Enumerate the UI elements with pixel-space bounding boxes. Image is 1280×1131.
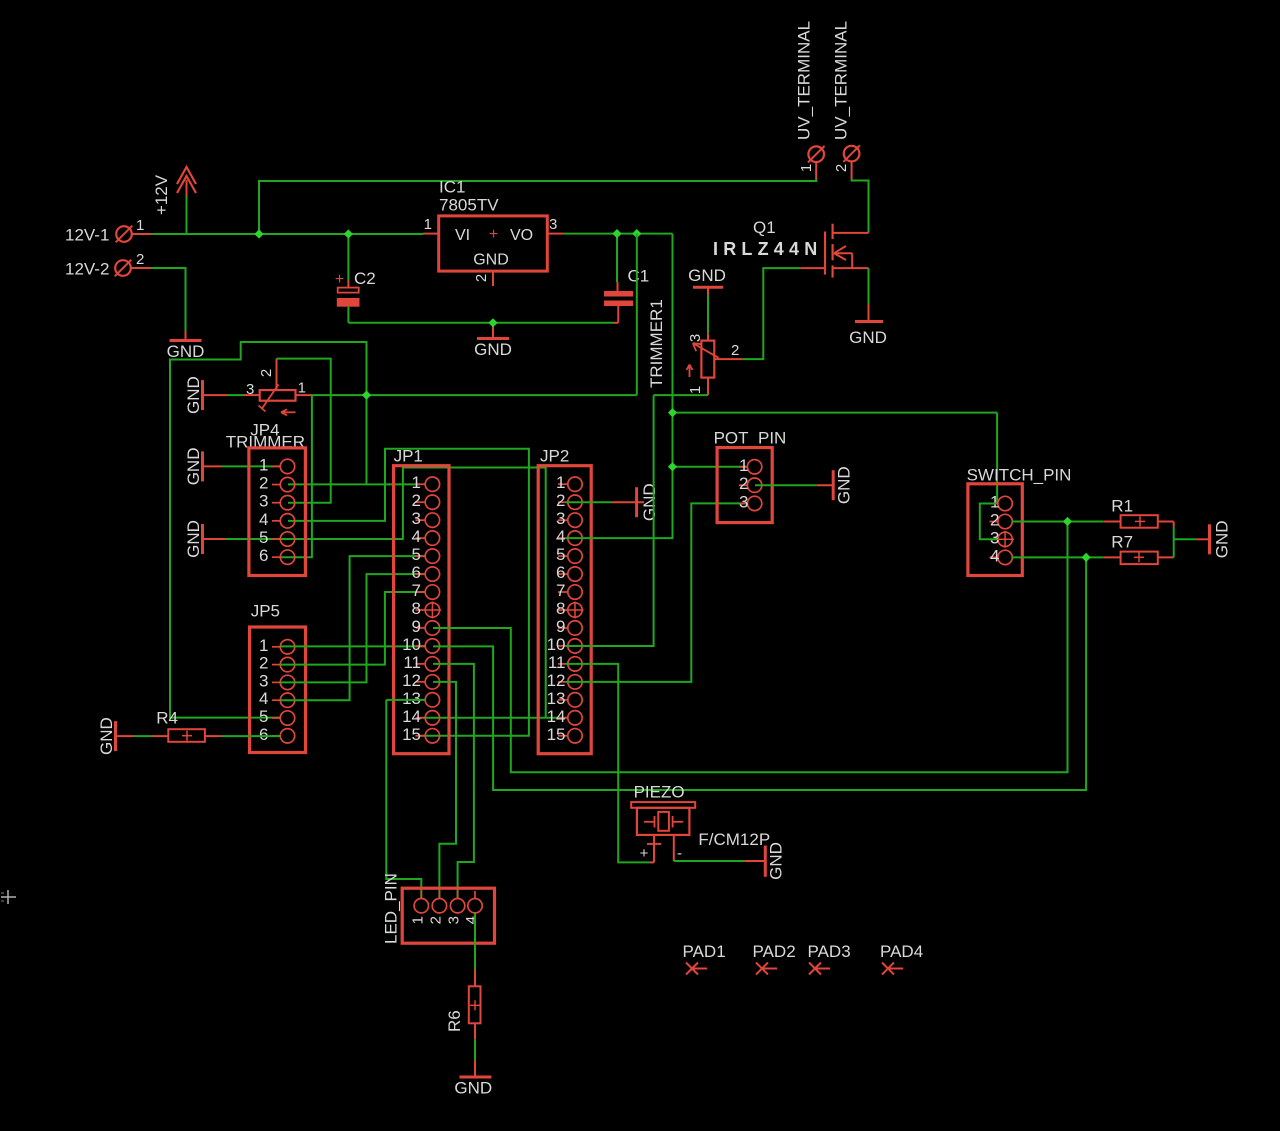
svg-text:10: 10 <box>402 635 421 654</box>
svg-text:3: 3 <box>990 528 999 547</box>
svg-text:+: + <box>489 226 498 243</box>
svg-text:GND: GND <box>849 328 887 347</box>
svg-text:2: 2 <box>990 511 999 530</box>
svg-text:GND: GND <box>473 252 509 269</box>
svg-text:12: 12 <box>402 671 421 690</box>
svg-text:9: 9 <box>412 617 421 636</box>
svg-text:3: 3 <box>259 492 268 511</box>
svg-text:13: 13 <box>402 689 421 708</box>
svg-text:11: 11 <box>548 653 566 672</box>
svg-text:R1: R1 <box>1111 497 1133 516</box>
svg-text:PIEZO: PIEZO <box>634 783 685 802</box>
svg-text:9: 9 <box>556 617 565 636</box>
svg-text:2: 2 <box>739 474 748 493</box>
svg-text:4: 4 <box>412 527 421 546</box>
svg-text:GND: GND <box>184 448 203 486</box>
svg-text:GND: GND <box>1213 520 1232 558</box>
svg-text:2: 2 <box>136 251 144 268</box>
svg-text:8: 8 <box>556 599 565 618</box>
svg-text:F/CM12P: F/CM12P <box>698 830 770 849</box>
svg-text:JP2: JP2 <box>540 447 569 466</box>
svg-text:2: 2 <box>731 342 739 359</box>
svg-text:15: 15 <box>402 725 421 744</box>
svg-text:1: 1 <box>556 473 565 492</box>
svg-text:R4: R4 <box>156 709 178 728</box>
svg-text:7: 7 <box>556 581 565 600</box>
svg-text:12V-1: 12V-1 <box>65 226 109 245</box>
svg-text:C1: C1 <box>628 267 650 286</box>
svg-text:6: 6 <box>259 725 268 744</box>
svg-text:3: 3 <box>446 916 463 924</box>
svg-text:14: 14 <box>402 707 421 726</box>
svg-text:R6: R6 <box>445 1010 464 1032</box>
svg-text:1: 1 <box>298 380 306 397</box>
svg-text:C2: C2 <box>354 269 376 288</box>
svg-text:IC1: IC1 <box>439 178 465 197</box>
svg-text:5: 5 <box>556 545 565 564</box>
svg-text:1: 1 <box>259 636 268 655</box>
svg-text:2: 2 <box>427 916 444 924</box>
svg-text:3: 3 <box>739 492 748 511</box>
svg-text:GND: GND <box>767 842 786 880</box>
svg-text:2: 2 <box>412 491 421 510</box>
svg-text:GND: GND <box>835 466 854 504</box>
svg-text:UV_TERMINAL: UV_TERMINAL <box>832 21 851 140</box>
svg-text:12V-2: 12V-2 <box>65 260 109 279</box>
svg-text:1: 1 <box>739 456 748 475</box>
svg-text:PAD1: PAD1 <box>683 942 726 961</box>
svg-text:-: - <box>677 845 682 862</box>
svg-text:GND: GND <box>97 717 116 755</box>
svg-text:1: 1 <box>409 916 426 924</box>
svg-text:6: 6 <box>556 563 565 582</box>
svg-text:+: + <box>335 271 344 288</box>
svg-text:2: 2 <box>556 491 565 510</box>
svg-text:VI: VI <box>455 227 470 244</box>
svg-text:GND: GND <box>184 376 203 414</box>
svg-text:7805TV: 7805TV <box>439 196 499 215</box>
svg-text:IRLZ44N: IRLZ44N <box>713 239 822 259</box>
svg-text:LED_PIN: LED_PIN <box>382 873 401 944</box>
svg-text:UV_TERMINAL: UV_TERMINAL <box>795 21 814 140</box>
svg-text:12: 12 <box>547 671 566 690</box>
svg-text:SWITCH_PIN: SWITCH_PIN <box>967 466 1072 485</box>
svg-text:10: 10 <box>547 635 566 654</box>
svg-text:3: 3 <box>687 334 704 342</box>
svg-text:5: 5 <box>259 528 268 547</box>
svg-text:2: 2 <box>259 654 268 673</box>
svg-text:4: 4 <box>463 916 480 924</box>
svg-text:PAD4: PAD4 <box>880 942 923 961</box>
svg-text:GND: GND <box>474 340 512 359</box>
svg-text:5: 5 <box>412 545 421 564</box>
svg-text:JP5: JP5 <box>251 602 280 621</box>
svg-text:2: 2 <box>259 474 268 493</box>
svg-text:GND: GND <box>184 520 203 558</box>
svg-text:PAD2: PAD2 <box>753 942 796 961</box>
svg-text:1: 1 <box>990 493 999 512</box>
svg-text:6: 6 <box>412 563 421 582</box>
svg-text:13: 13 <box>547 689 566 708</box>
svg-text:PAD3: PAD3 <box>808 942 851 961</box>
svg-text:+12V: +12V <box>152 174 171 215</box>
svg-text:1: 1 <box>798 164 815 172</box>
svg-text:GND: GND <box>167 342 205 361</box>
svg-text:8: 8 <box>412 599 421 618</box>
svg-text:TRIMMER1: TRIMMER1 <box>647 299 666 388</box>
svg-text:3: 3 <box>549 216 557 233</box>
svg-text:5: 5 <box>259 707 268 726</box>
svg-text:4: 4 <box>259 510 268 529</box>
svg-text:4: 4 <box>990 546 999 565</box>
svg-text:4: 4 <box>556 527 565 546</box>
svg-text:3: 3 <box>412 509 421 528</box>
svg-text:GND: GND <box>688 266 726 285</box>
svg-text:1: 1 <box>136 217 144 234</box>
svg-text:GND: GND <box>640 483 659 521</box>
svg-text:3: 3 <box>556 509 565 528</box>
svg-text:14: 14 <box>547 707 566 726</box>
svg-text:POT_PIN: POT_PIN <box>714 429 787 448</box>
svg-text:1: 1 <box>424 216 432 233</box>
svg-text:GND: GND <box>454 1079 492 1098</box>
svg-text:4: 4 <box>259 689 268 708</box>
svg-text:2: 2 <box>258 369 275 377</box>
svg-text:Q1: Q1 <box>753 218 776 237</box>
svg-text:JP1: JP1 <box>394 447 423 466</box>
svg-text:2: 2 <box>833 164 850 172</box>
svg-text:1: 1 <box>259 455 268 474</box>
svg-text:1: 1 <box>687 386 704 394</box>
svg-text:6: 6 <box>259 546 268 565</box>
svg-text:11: 11 <box>403 653 421 672</box>
svg-text:VO: VO <box>510 227 533 244</box>
svg-text:7: 7 <box>412 581 421 600</box>
svg-text:3: 3 <box>259 671 268 690</box>
svg-text:1: 1 <box>412 473 421 492</box>
svg-text:3: 3 <box>246 381 254 398</box>
svg-text:2: 2 <box>473 274 490 282</box>
svg-text:15: 15 <box>547 725 566 744</box>
svg-text:+: + <box>640 845 649 862</box>
svg-text:R7: R7 <box>1111 533 1133 552</box>
